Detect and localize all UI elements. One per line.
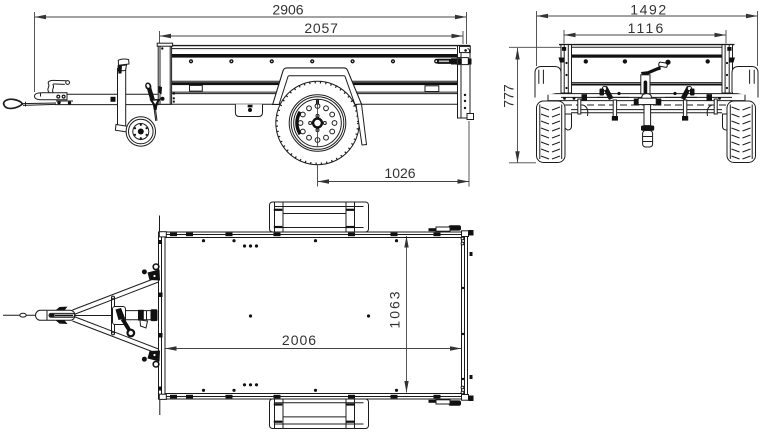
svg-text:777: 777 — [501, 84, 517, 108]
svg-text:1026: 1026 — [384, 165, 415, 181]
svg-text:1063: 1063 — [387, 289, 403, 328]
svg-text:1492: 1492 — [630, 2, 668, 18]
svg-text:1116: 1116 — [628, 20, 666, 36]
svg-text:2057: 2057 — [304, 20, 338, 36]
svg-text:2906: 2906 — [272, 2, 303, 18]
svg-text:2006: 2006 — [282, 332, 317, 348]
